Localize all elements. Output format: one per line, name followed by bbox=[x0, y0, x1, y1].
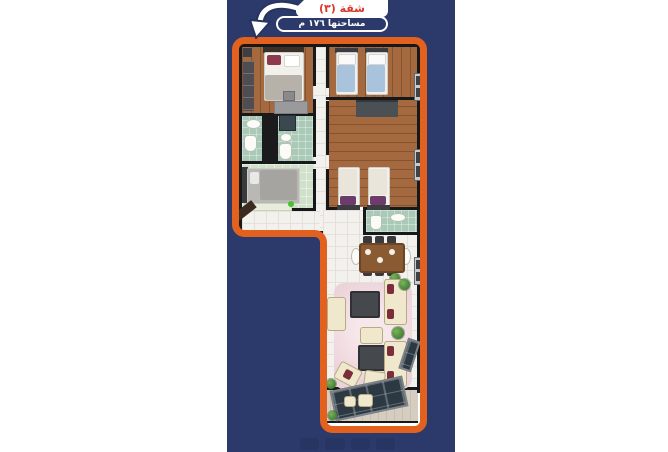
toilet bbox=[370, 215, 382, 230]
center-seat bbox=[360, 327, 383, 344]
wardrobe bbox=[243, 61, 254, 111]
watermark-mark bbox=[351, 438, 370, 450]
window-pane bbox=[416, 166, 423, 177]
bed-pillow bbox=[338, 54, 356, 65]
bed-blanket bbox=[337, 65, 355, 92]
wall-wc-bottom bbox=[363, 232, 417, 235]
wall-rightrooms-c bbox=[326, 169, 329, 210]
sofa-cushion bbox=[387, 309, 394, 319]
wall-left bbox=[239, 44, 242, 234]
watermark bbox=[300, 438, 395, 450]
double-bed-pillow-left bbox=[267, 55, 281, 65]
hall-closet bbox=[262, 113, 278, 163]
shower bbox=[279, 115, 296, 131]
wall-rightrooms-b bbox=[326, 101, 329, 155]
sink bbox=[280, 133, 292, 142]
window-pane bbox=[416, 88, 423, 97]
bed-pillow bbox=[370, 196, 386, 205]
bed-footboard bbox=[367, 205, 390, 210]
blue-panel: شقة (٣) مساحتها ١٧٦ م bbox=[227, 0, 455, 452]
plant bbox=[392, 327, 404, 339]
plant bbox=[326, 379, 336, 389]
double-bed-pillow-right bbox=[284, 55, 300, 67]
window-pane bbox=[416, 272, 423, 281]
area-label-box: مساحتها ١٧٦ م bbox=[276, 16, 388, 32]
area-label: مساحتها ١٧٦ م bbox=[299, 20, 366, 29]
bed-pillow bbox=[368, 54, 386, 65]
plant-small bbox=[288, 201, 294, 207]
nightstand bbox=[243, 48, 252, 57]
coffee-table-2 bbox=[358, 345, 387, 371]
gray-bed bbox=[242, 167, 299, 203]
bed-blanket bbox=[369, 169, 387, 195]
wall-corridor-left-a bbox=[313, 44, 316, 86]
wall-balcony-edge bbox=[320, 421, 418, 423]
wall-step-horizontal bbox=[239, 231, 323, 234]
sofa-cushion bbox=[342, 369, 353, 381]
window-pane bbox=[416, 152, 423, 163]
bed-pillow bbox=[250, 172, 259, 184]
toilet bbox=[244, 135, 257, 152]
wall-corridor-left-b bbox=[313, 99, 316, 157]
window-pane bbox=[416, 260, 423, 269]
wall-rightrooms-a bbox=[326, 44, 329, 88]
bed-footboard bbox=[337, 205, 360, 210]
desk bbox=[274, 101, 308, 114]
window-pane bbox=[416, 76, 423, 85]
plate bbox=[365, 249, 371, 255]
balcony-table bbox=[358, 394, 373, 407]
watermark-mark bbox=[300, 438, 319, 450]
sink bbox=[246, 119, 261, 129]
bed-blanket bbox=[339, 169, 357, 195]
entry-hall-floor bbox=[242, 211, 320, 231]
stool bbox=[283, 91, 295, 101]
sink bbox=[390, 213, 406, 222]
watermark-mark bbox=[325, 438, 344, 450]
plant bbox=[328, 411, 337, 420]
plate bbox=[377, 257, 383, 263]
bed-blanket bbox=[367, 65, 385, 92]
watermark-mark bbox=[376, 438, 395, 450]
floor-plan bbox=[232, 37, 427, 433]
apartment-label-box: شقة (٣) bbox=[296, 0, 388, 17]
plate bbox=[389, 249, 395, 255]
single-bed-blue-2 bbox=[365, 48, 388, 94]
plant bbox=[399, 279, 410, 290]
dresser-unit bbox=[356, 100, 398, 117]
balcony-chair bbox=[344, 396, 356, 407]
toilet bbox=[279, 143, 292, 160]
sofa-left bbox=[327, 297, 346, 331]
coffee-table-1 bbox=[350, 291, 380, 318]
sofa-cushion bbox=[387, 346, 394, 356]
single-bed-blue-1 bbox=[335, 48, 358, 94]
bed-pillow bbox=[340, 196, 356, 205]
sofa-cushion bbox=[387, 284, 394, 294]
single-bed-purple-1 bbox=[337, 167, 360, 211]
apartment-label: شقة (٣) bbox=[319, 2, 365, 15]
bed-blanket bbox=[260, 170, 297, 200]
flyer-page: شقة (٣) مساحتها ١٧٦ م bbox=[0, 0, 668, 452]
wall-corridor-left-c bbox=[313, 169, 316, 211]
single-bed-purple-2 bbox=[367, 167, 390, 211]
dining-table bbox=[359, 243, 405, 273]
